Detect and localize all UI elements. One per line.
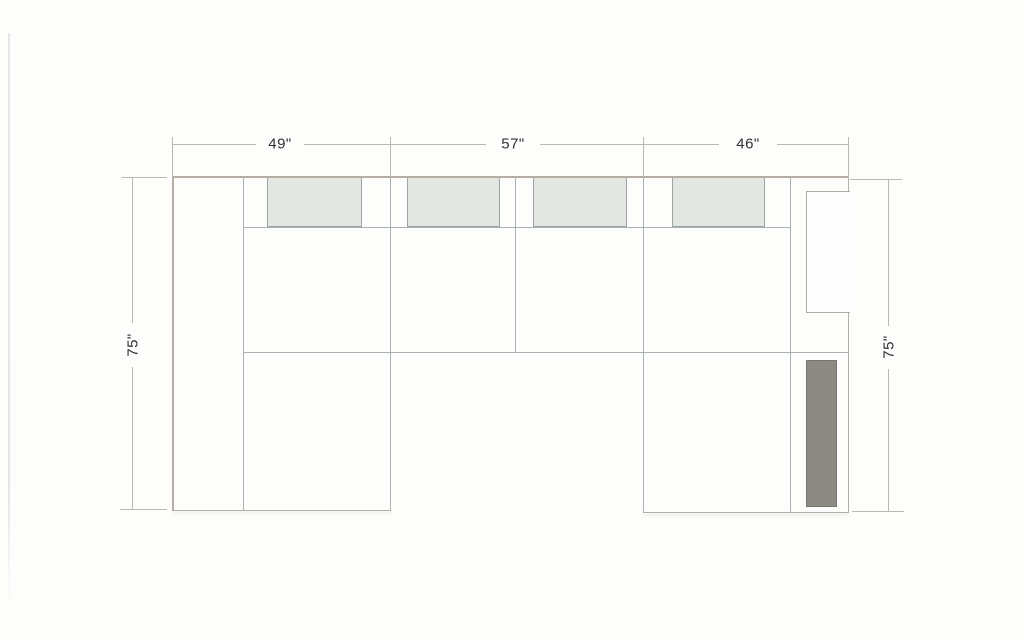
dimension-label-75in-right: 75" [882, 328, 897, 366]
top-dimension-line [540, 144, 719, 145]
middle-seat-divider [515, 176, 516, 353]
dimension-extension [852, 511, 904, 512]
dimension-label-75in-left: 75" [126, 326, 141, 364]
dimension-extension [850, 179, 902, 180]
top-dimension-line [304, 144, 486, 145]
sofa-left-edge [172, 176, 174, 511]
dimension-tick [643, 137, 644, 177]
dimension-label-49in: 49" [261, 137, 299, 152]
sofa-floorplan-canvas: 49" 57" 46" 75" 75" [0, 0, 1024, 640]
dimension-label-57in: 57" [494, 137, 532, 152]
back-cushion-3 [533, 178, 627, 227]
dimension-extension [120, 509, 167, 510]
left-dimension-line [132, 177, 133, 323]
dimension-label-46in: 46" [729, 137, 767, 152]
section-divider-57-46 [643, 176, 644, 513]
dimension-tick [390, 137, 391, 177]
right-arm-inner-seam [790, 176, 791, 512]
right-dimension-line [888, 179, 889, 326]
left-chaise-bottom-edge [172, 510, 391, 512]
dimension-tick [848, 137, 849, 180]
left-dimension-line [132, 367, 133, 510]
top-dimension-line [777, 144, 849, 145]
right-dimension-line [888, 369, 889, 512]
backrest-inner-seam [243, 227, 791, 228]
right-back-cushion [806, 191, 850, 313]
top-dimension-line [172, 144, 256, 145]
page-edge-line [8, 33, 10, 605]
back-cushion-4 [672, 178, 765, 227]
right-arm-dark-pad [806, 360, 837, 507]
back-cushion-1 [267, 178, 362, 227]
section-divider-49-57 [390, 176, 391, 510]
right-section-bottom-edge [643, 512, 849, 514]
dimension-tick [172, 137, 173, 177]
dimension-extension [122, 177, 167, 178]
seat-front-seam [243, 352, 849, 353]
back-cushion-2 [407, 178, 500, 227]
